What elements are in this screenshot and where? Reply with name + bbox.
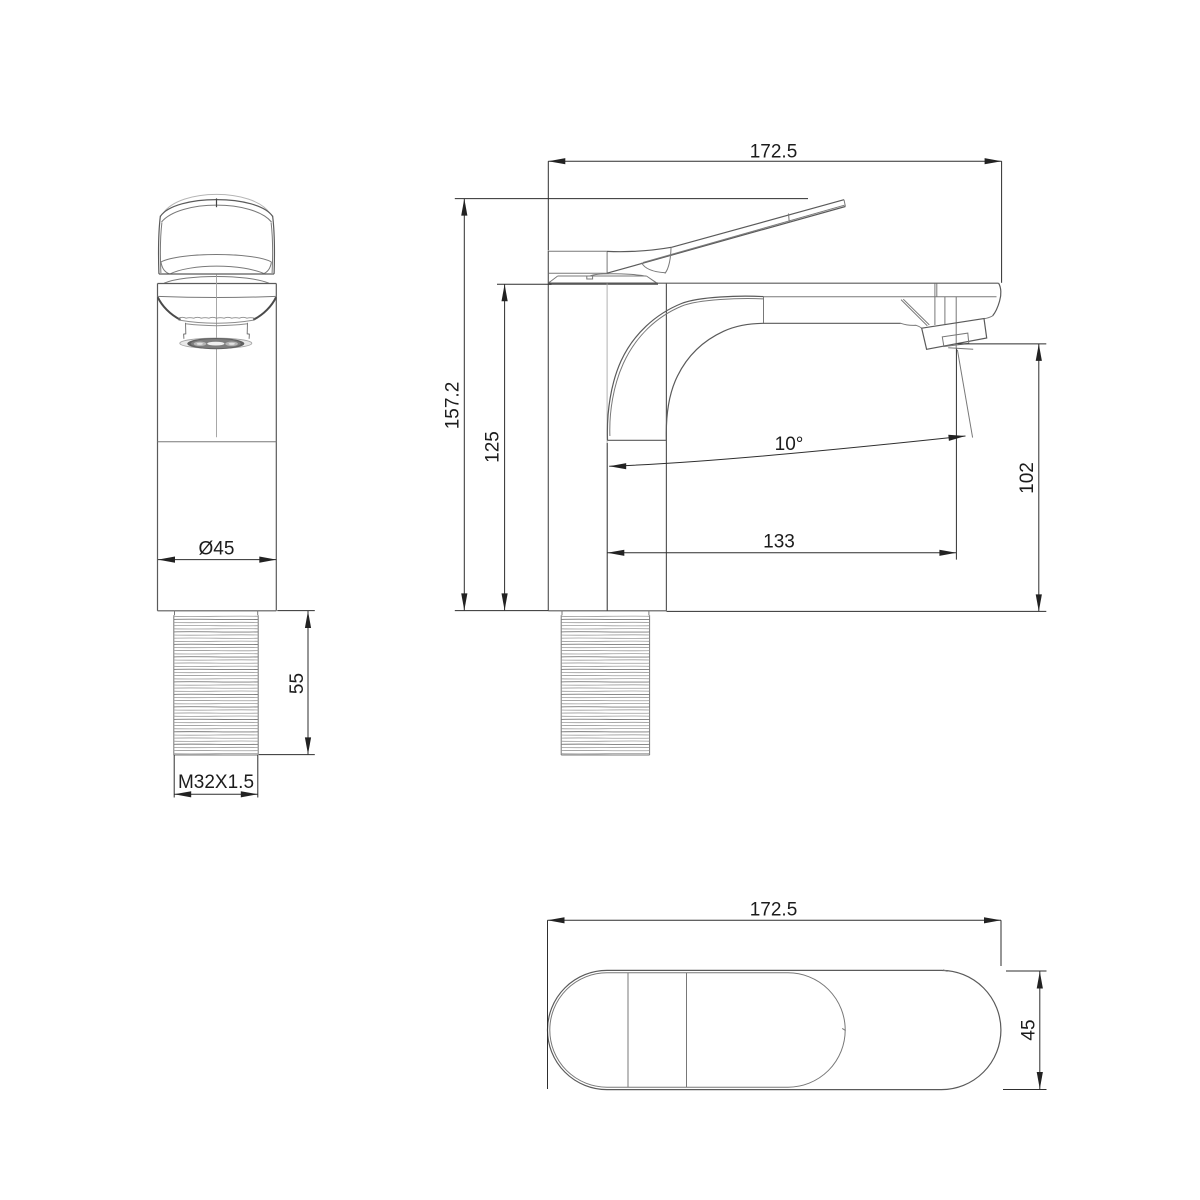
svg-text:125: 125 bbox=[483, 431, 504, 463]
svg-text:102: 102 bbox=[1017, 462, 1038, 494]
svg-text:133: 133 bbox=[763, 531, 795, 552]
svg-text:10°: 10° bbox=[775, 434, 804, 455]
svg-text:55: 55 bbox=[287, 673, 308, 694]
svg-text:172.5: 172.5 bbox=[750, 900, 798, 921]
svg-text:172.5: 172.5 bbox=[750, 142, 798, 163]
svg-text:157.2: 157.2 bbox=[443, 382, 464, 430]
svg-text:Ø45: Ø45 bbox=[199, 539, 235, 560]
svg-text:45: 45 bbox=[1019, 1019, 1040, 1040]
svg-text:M32X1.5: M32X1.5 bbox=[178, 772, 254, 793]
